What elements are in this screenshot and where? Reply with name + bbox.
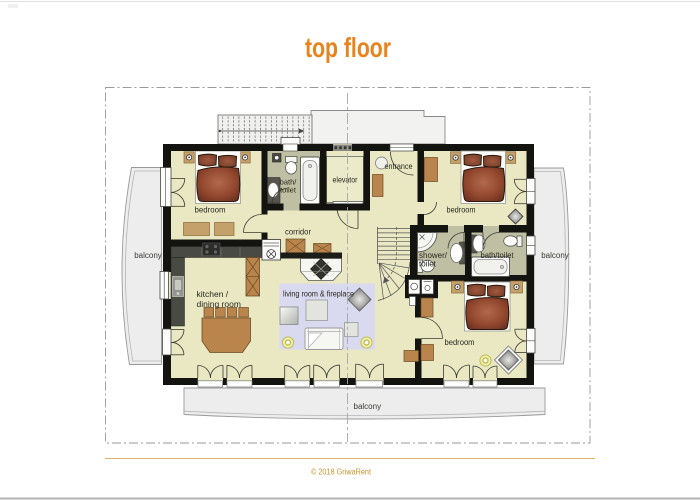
svg-text:entrance: entrance (385, 162, 413, 171)
svg-text:toilet: toilet (280, 186, 297, 195)
svg-text:bedroom: bedroom (447, 206, 476, 215)
svg-text:bedroom: bedroom (445, 338, 475, 347)
svg-text:dining room: dining room (197, 299, 241, 309)
svg-text:bath/toilet: bath/toilet (481, 251, 515, 260)
svg-text:toilet: toilet (419, 260, 437, 269)
svg-text:balcony: balcony (354, 402, 382, 411)
svg-text:elevator: elevator (333, 176, 358, 185)
svg-text:corridor: corridor (285, 228, 311, 237)
svg-text:balcony: balcony (541, 251, 569, 260)
svg-text:living room & fireplace: living room & fireplace (283, 290, 354, 299)
svg-text:© 2018 GriwaRent: © 2018 GriwaRent (311, 467, 372, 477)
svg-text:top floor: top floor (305, 32, 391, 63)
svg-text:kitchen /: kitchen / (197, 289, 229, 299)
svg-text:bedroom: bedroom (195, 206, 226, 215)
svg-text:balcony: balcony (134, 251, 162, 260)
